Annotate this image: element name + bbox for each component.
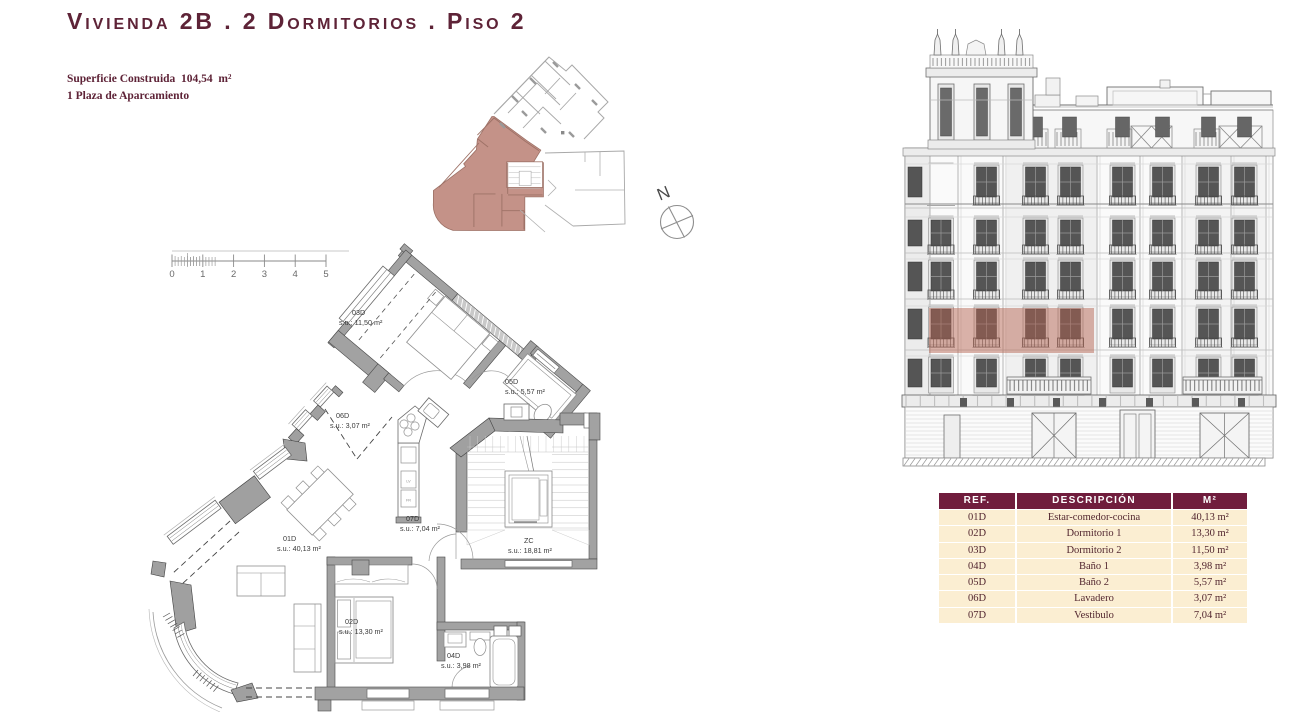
- svg-text:s.u.: 3,98 m²: s.u.: 3,98 m²: [441, 661, 482, 670]
- svg-text:ZC: ZC: [524, 536, 534, 545]
- svg-text:04D: 04D: [447, 651, 460, 660]
- svg-text:01D: 01D: [283, 534, 296, 543]
- svg-text:07D: 07D: [406, 514, 419, 523]
- svg-text:5: 5: [323, 269, 328, 280]
- svg-text:4: 4: [293, 269, 298, 280]
- svg-text:3: 3: [262, 269, 267, 280]
- svg-text:s.u.: 40,13 m²: s.u.: 40,13 m²: [277, 544, 322, 553]
- svg-text:2: 2: [231, 269, 236, 280]
- svg-text:1: 1: [200, 269, 205, 280]
- svg-text:s.u.: 11,50 m²: s.u.: 11,50 m²: [339, 318, 383, 327]
- svg-text:05D: 05D: [505, 377, 518, 386]
- svg-text:s.u.: 7,04 m²: s.u.: 7,04 m²: [400, 524, 441, 533]
- svg-text:s.u.: 3,07 m²: s.u.: 3,07 m²: [330, 421, 371, 430]
- svg-text:s.u.: 5,57 m²: s.u.: 5,57 m²: [505, 387, 546, 396]
- svg-text:03D: 03D: [352, 308, 365, 317]
- svg-text:s.u.: 13,30 m²: s.u.: 13,30 m²: [339, 627, 384, 636]
- svg-text:FR: FR: [406, 499, 411, 503]
- svg-text:02D: 02D: [345, 617, 358, 626]
- svg-text:0: 0: [169, 269, 174, 280]
- svg-text:s.u.: 18,81 m²: s.u.: 18,81 m²: [508, 546, 553, 555]
- svg-text:06D: 06D: [336, 411, 349, 420]
- svg-text:N: N: [654, 182, 673, 204]
- svg-text:LV: LV: [406, 480, 411, 484]
